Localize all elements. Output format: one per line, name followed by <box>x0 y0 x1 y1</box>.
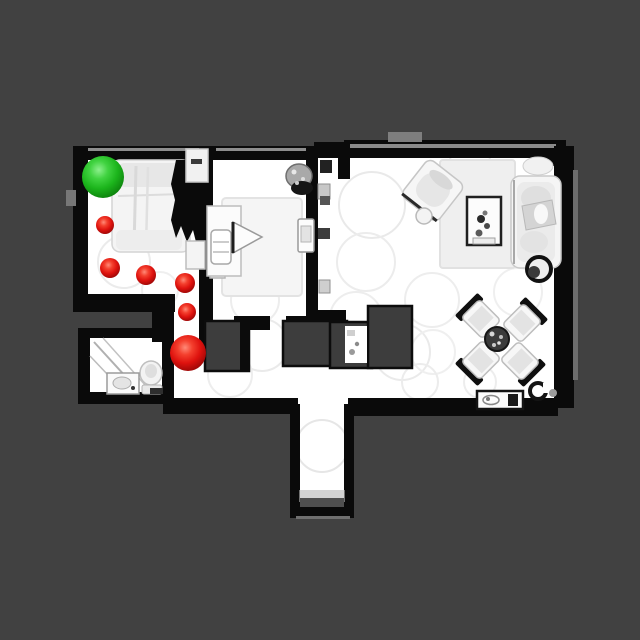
dining-centerpiece <box>485 327 509 351</box>
toilet-bowl <box>145 364 157 378</box>
wall-entry-bottom-cap <box>296 516 350 519</box>
scene-viewport[interactable] <box>0 0 640 640</box>
plant-speck <box>295 181 299 185</box>
strip-item-dark <box>320 196 330 205</box>
centerpiece-speck <box>497 341 501 345</box>
wall-living-bottom <box>348 398 558 416</box>
coffee-table-shelf <box>473 238 495 244</box>
nightstand-mark <box>191 159 202 164</box>
armchair-footrest <box>416 208 432 224</box>
coffee-table-item <box>484 223 490 229</box>
strip-item <box>319 280 330 293</box>
wall-hall-bottom <box>163 398 298 414</box>
plant-speck <box>301 177 305 181</box>
plant-speck <box>292 170 297 175</box>
middle-room-plant-shadow <box>291 181 313 195</box>
wall-living-right-edge <box>573 170 578 380</box>
centerpiece-speck <box>492 343 496 347</box>
waypoint-marker-red-sphere-1 <box>96 216 114 234</box>
wall-bedroom-left-tab <box>66 190 76 206</box>
waypoint-marker-red-sphere-5 <box>178 303 196 321</box>
sofa-top-blob <box>523 157 553 175</box>
coffee-table-item <box>483 211 488 216</box>
sofa-highlight <box>534 204 548 224</box>
waypoint-marker-red-sphere-3 <box>136 265 156 285</box>
wall-hall-left-block <box>152 300 174 342</box>
bathroom-dark-mark <box>150 388 163 394</box>
waypoint-marker-red-sphere-2 <box>100 258 120 278</box>
wall-entry-right <box>344 404 354 516</box>
waypoint-marker-red-sphere-4 <box>175 273 195 293</box>
start-marker-green-sphere <box>82 156 124 198</box>
strip-item-dark <box>318 228 330 239</box>
middle-side-table-top <box>301 226 311 242</box>
console-dark-box <box>508 394 518 406</box>
sofa-side-table-dark <box>528 266 540 278</box>
wall-living-top-cap <box>350 144 556 148</box>
entry-smudge-dark <box>300 498 344 507</box>
wall-bedroom-top-cap <box>78 148 202 151</box>
wall-entry-left <box>290 404 300 514</box>
coffee-table-item <box>476 230 483 237</box>
strip-dark-blob <box>320 160 332 173</box>
wall-living-left-stub <box>338 155 350 179</box>
notch-item <box>347 330 355 336</box>
bed-foot-shade <box>116 230 182 250</box>
notch-item-dot <box>355 342 359 346</box>
wall-middle-top-cap <box>216 148 310 151</box>
console-decor-dot <box>486 397 490 401</box>
centerpiece-speck <box>490 332 495 337</box>
sink-basin <box>113 377 131 389</box>
corner-item-blob <box>549 389 557 397</box>
centerpiece-speck <box>499 335 503 339</box>
notch-item-dot <box>349 349 355 355</box>
bedroom-side-box <box>186 241 205 269</box>
coffee-table-item <box>477 215 485 223</box>
sink-speck <box>131 386 135 390</box>
kitchen-counter-left-bar <box>240 322 250 370</box>
floorplan-svg[interactable] <box>0 0 640 640</box>
wall-living-top-bump <box>388 132 422 142</box>
sofa-cushion <box>520 231 548 253</box>
kitchen-counter-riser <box>368 306 412 368</box>
desk-drawers <box>211 230 231 264</box>
nightstand <box>186 149 208 182</box>
goal-marker-red-sphere <box>170 335 206 371</box>
wall-living-top <box>344 140 566 158</box>
